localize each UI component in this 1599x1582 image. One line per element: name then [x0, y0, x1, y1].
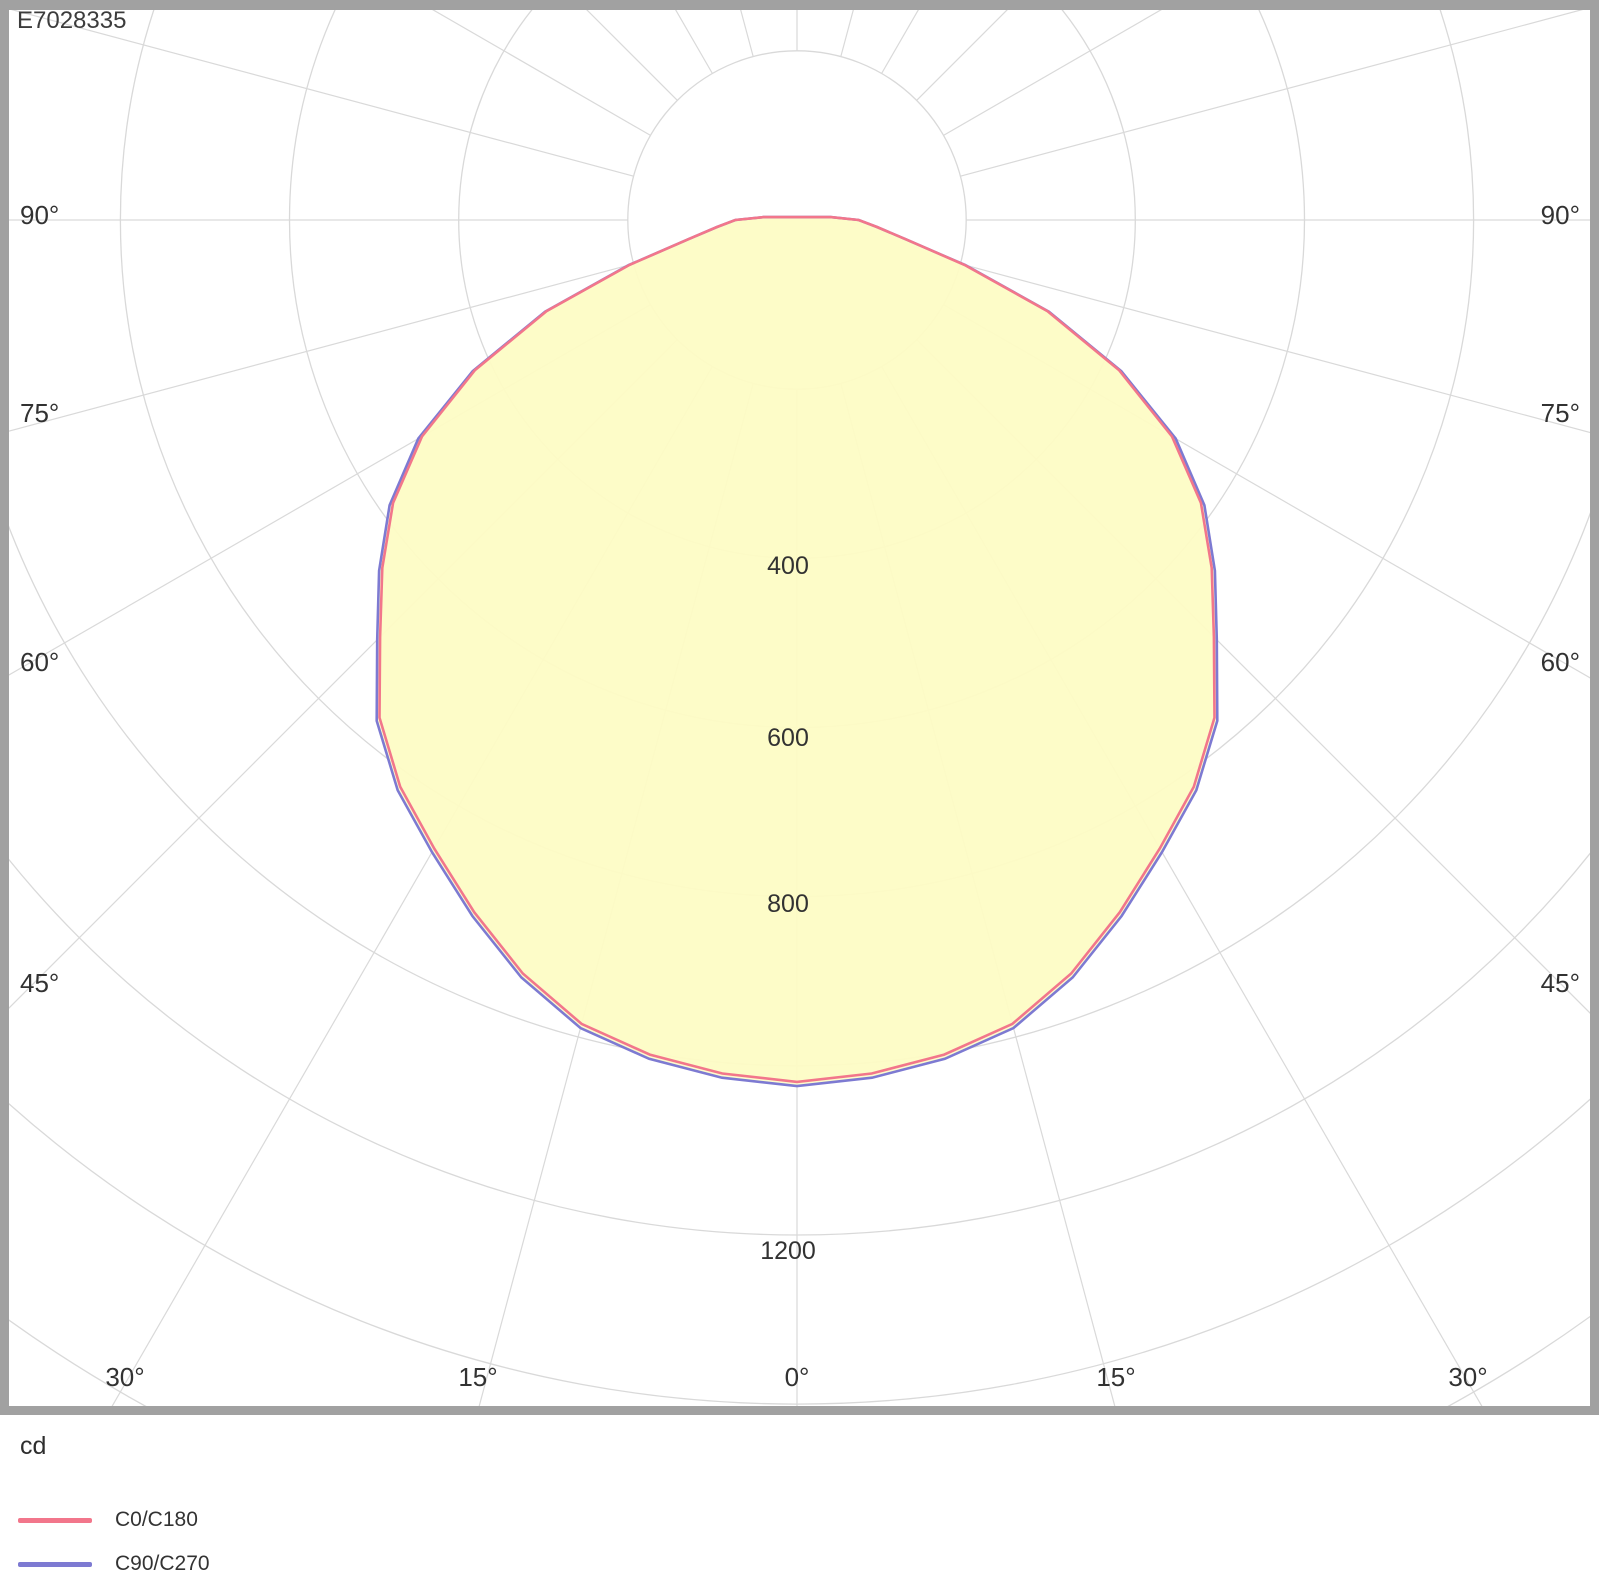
- polar-chart: 90°90°75°75°60°60°45°45°30°15°0°15°30°40…: [0, 0, 1599, 1582]
- axis-tick-label: 1200: [760, 1237, 816, 1265]
- axis-tick-label: 15°: [458, 1362, 497, 1392]
- axis-tick-label: 75°: [20, 398, 59, 428]
- axis-tick-label: 60°: [20, 647, 59, 677]
- axis-tick-label: 45°: [20, 968, 59, 998]
- intensity-curves: [377, 217, 1218, 1086]
- axis-tick-label: 800: [767, 890, 809, 918]
- legend-line-c90-icon: [18, 1562, 92, 1567]
- legend: C0/C180 C90/C270: [18, 1498, 210, 1582]
- axis-tick-label: 60°: [1541, 647, 1580, 677]
- diagram-title: E7028335: [17, 7, 126, 35]
- axis-tick-label: 0°: [785, 1362, 810, 1392]
- legend-label-c90: C90/C270: [115, 1552, 210, 1576]
- legend-item: C90/C270: [18, 1542, 210, 1582]
- legend-label-c0: C0/C180: [115, 1508, 198, 1532]
- legend-line-c0-icon: [18, 1518, 92, 1523]
- photometric-diagram: 90°90°75°75°60°60°45°45°30°15°0°15°30°40…: [0, 0, 1599, 1582]
- axis-tick-label: 30°: [1448, 1362, 1487, 1392]
- axis-tick-label: 75°: [1541, 398, 1580, 428]
- axis-tick-label: 90°: [20, 200, 59, 230]
- axis-tick-label: 30°: [105, 1362, 144, 1392]
- axis-tick-label: 15°: [1096, 1362, 1135, 1392]
- axis-tick-label: 90°: [1541, 200, 1580, 230]
- axis-tick-label: 45°: [1541, 968, 1580, 998]
- legend-item: C0/C180: [18, 1498, 210, 1542]
- axis-tick-label: 400: [767, 552, 809, 580]
- unit-label: cd: [20, 1432, 46, 1461]
- axis-tick-label: 600: [767, 724, 809, 752]
